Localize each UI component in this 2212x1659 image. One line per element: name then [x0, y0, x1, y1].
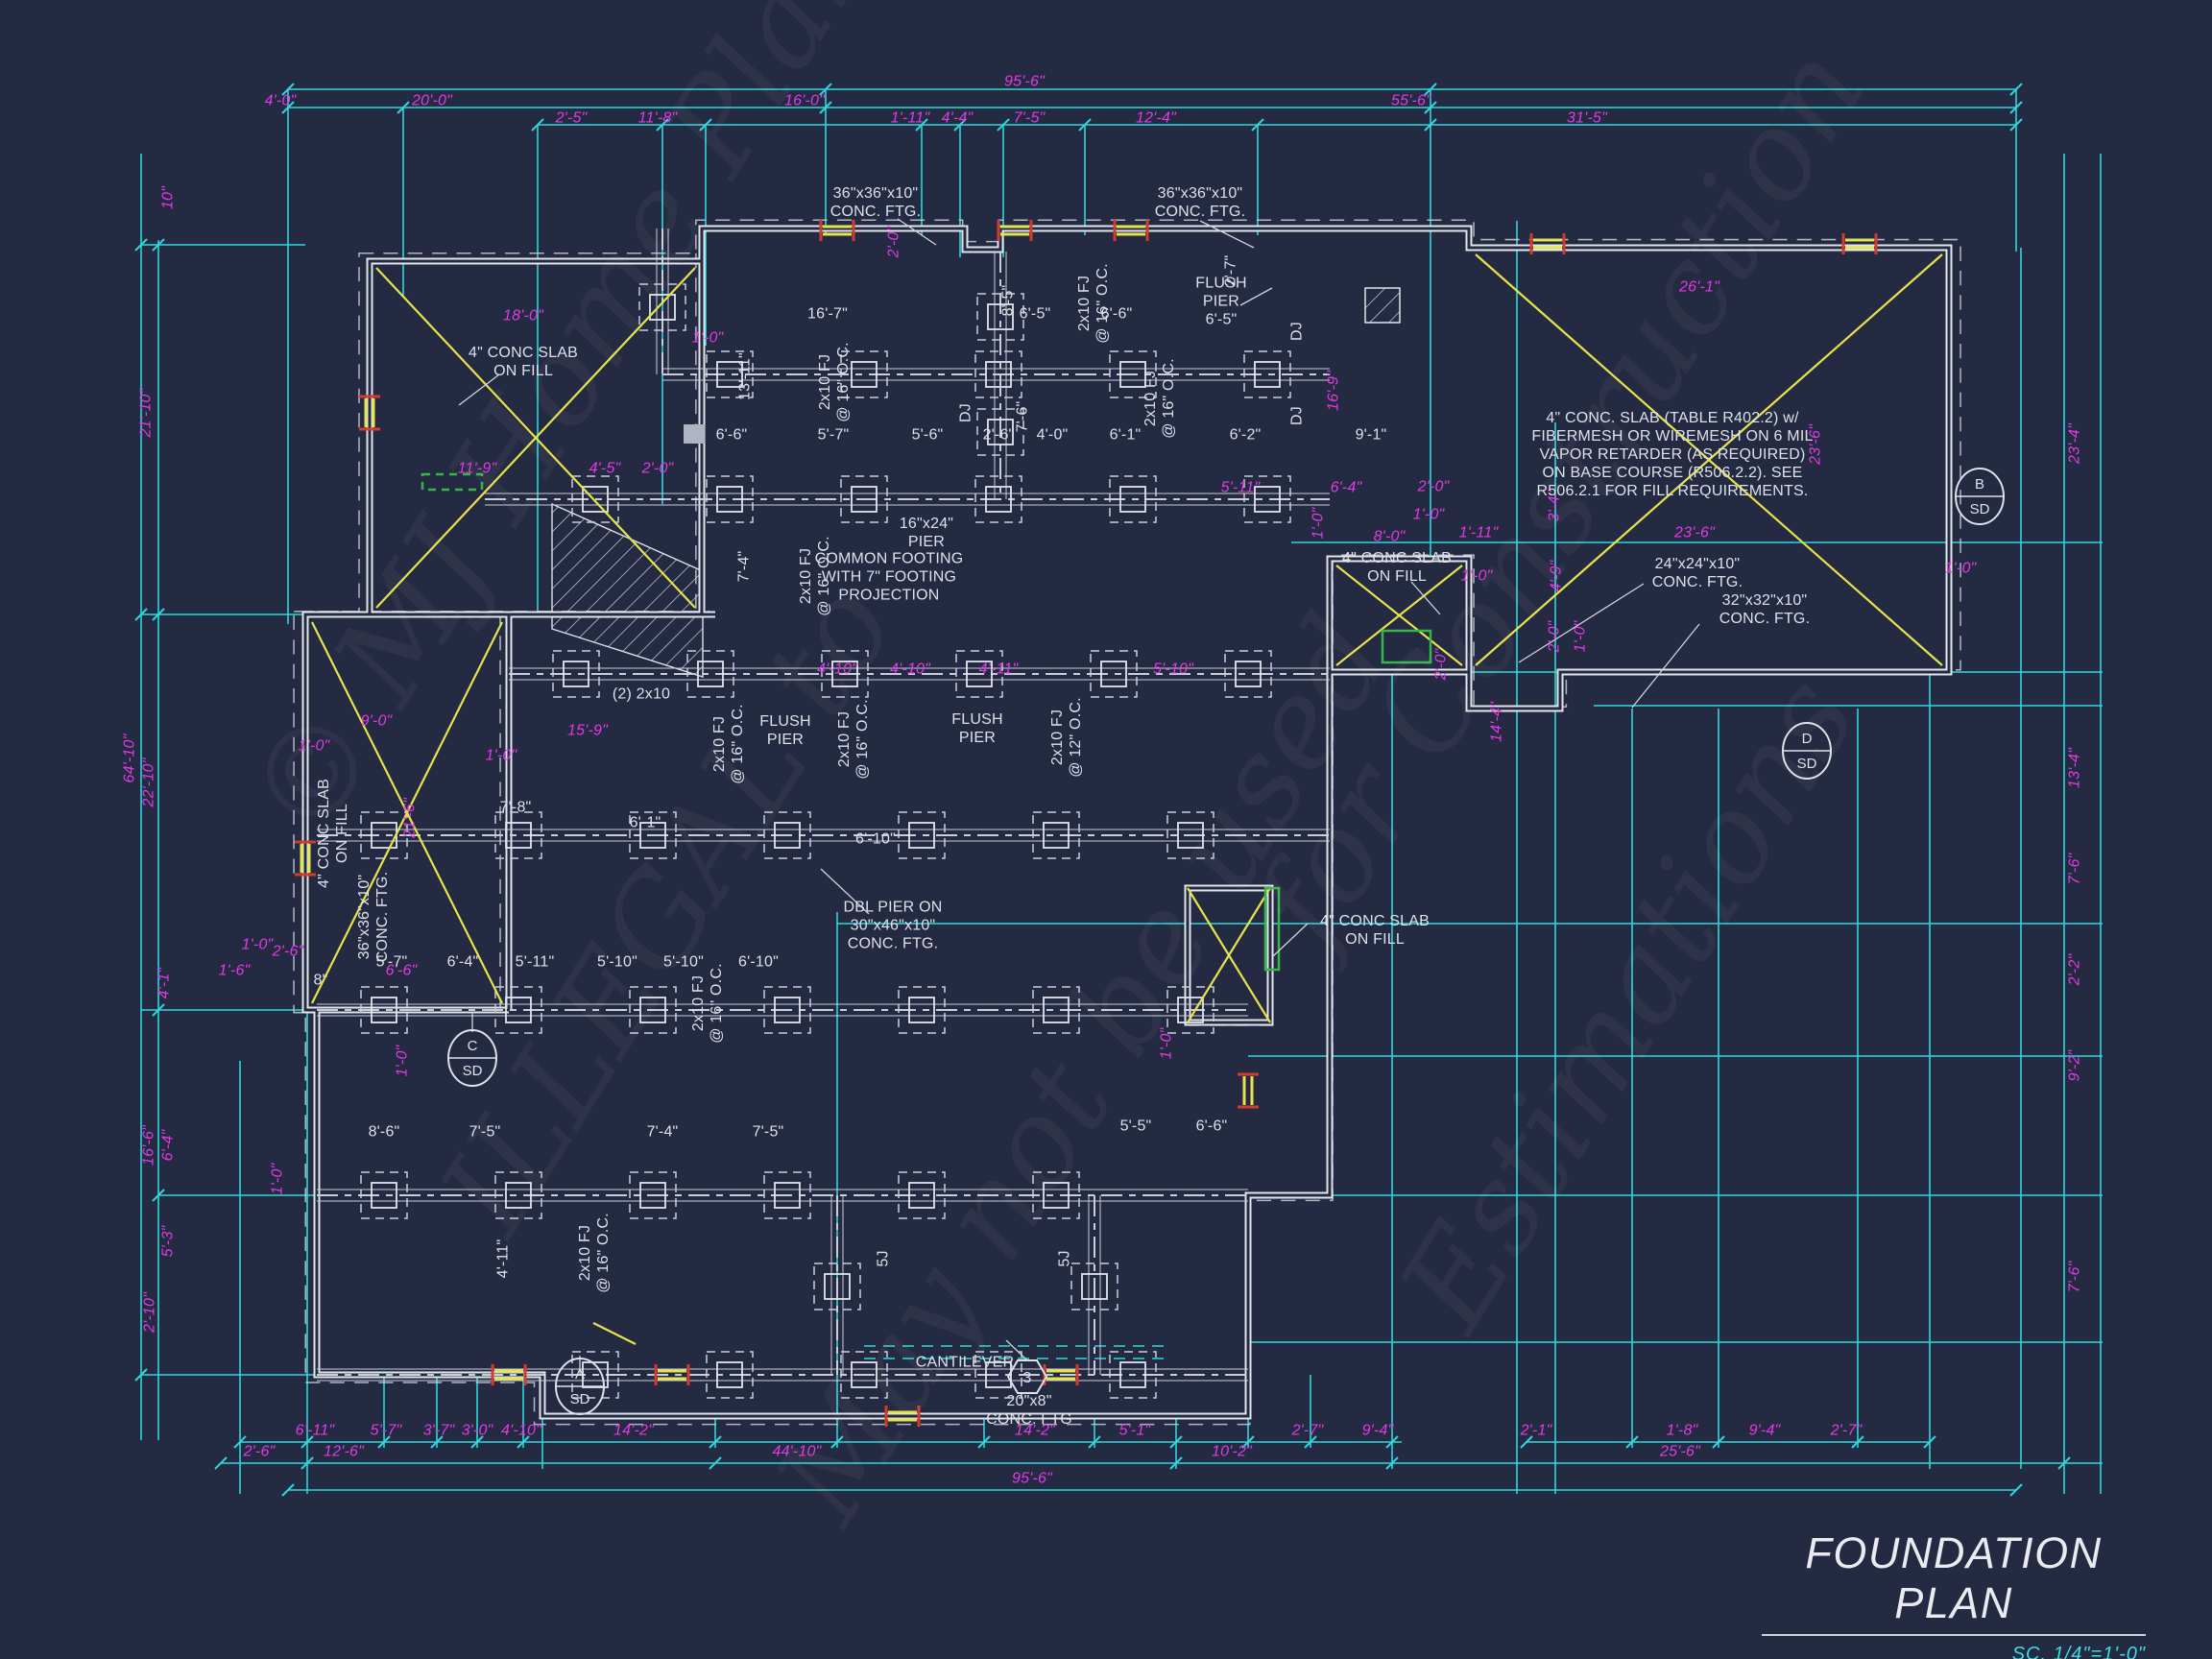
foundation-plan-sheet: ASDBSDCSDDSD3 © MJ Home PlansILLEGAL toM…: [0, 0, 2212, 1659]
slab-x-braces: [312, 254, 1942, 1344]
title-block: FOUNDATION PLAN SC. 1/4"=1'-0": [1762, 1528, 2146, 1659]
section-marker-text: SD: [463, 1063, 483, 1079]
drawing-scale: SC. 1/4"=1'-0": [1762, 1644, 2146, 1659]
foundation-plan-drawing: ASDBSDCSDDSD3: [0, 0, 2212, 1659]
dimension-grid: [135, 84, 2103, 1496]
section-marker-text: C: [468, 1038, 478, 1054]
section-marker-text: SD: [1970, 501, 1990, 517]
beam-and-pier-layout: [317, 228, 1400, 1398]
footing-dashed-outline: [294, 220, 1960, 1424]
drawing-title: FOUNDATION PLAN: [1762, 1528, 2146, 1628]
foundation-wall-outer: [305, 228, 1949, 1416]
detail-hex-number: 3: [1023, 1370, 1032, 1386]
section-marker-text: D: [1802, 731, 1813, 747]
section-marker-text: SD: [570, 1391, 590, 1407]
vent-markers: [295, 220, 1876, 1427]
title-underline: [1762, 1634, 2146, 1636]
section-marker-text: B: [1975, 476, 1984, 493]
section-marker-text: A: [575, 1366, 585, 1382]
foundation-wall-core: [305, 228, 1949, 1416]
section-marker-text: SD: [1797, 756, 1817, 772]
